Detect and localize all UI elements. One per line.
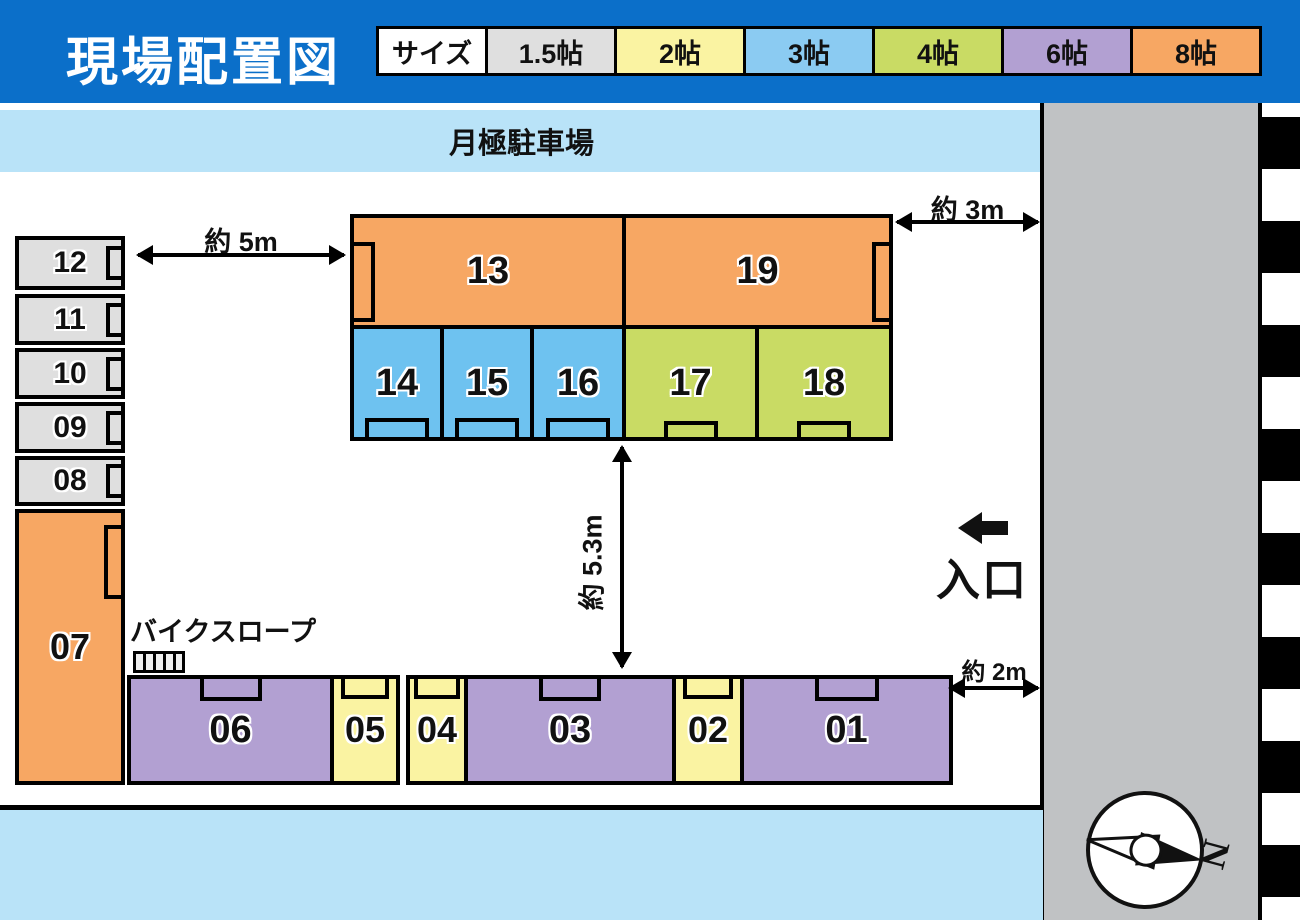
legend-item-3jo: 3帖: [743, 26, 875, 76]
legend-item-8jo: 8帖: [1130, 26, 1262, 76]
dimension-5-3m-arrow: [620, 447, 624, 667]
legend-item-4jo: 4帖: [872, 26, 1004, 76]
door-mark: [106, 246, 121, 280]
bottom-band: [0, 810, 1043, 920]
dimension-3m-arrow: [897, 220, 1038, 224]
unit-02-label: 02: [688, 709, 728, 751]
door-mark: [365, 418, 429, 437]
site-layout-map: 現場配置図 サイズ 1.5帖 2帖 3帖 4帖 6帖 8帖 月極駐車場 12 1…: [0, 0, 1300, 920]
unit-09-label: 09: [53, 411, 86, 445]
door-mark: [106, 411, 121, 445]
legend-header: サイズ: [376, 26, 488, 76]
size-legend: サイズ 1.5帖 2帖 3帖 4帖 6帖 8帖: [376, 26, 1262, 76]
unit-18: 18: [755, 325, 893, 441]
unit-07-label: 07: [50, 626, 90, 668]
unit-12-label: 12: [53, 246, 86, 280]
unit-06-label: 06: [209, 709, 251, 752]
entrance-label: 入口: [936, 544, 1028, 608]
door-mark: [106, 303, 121, 337]
unit-13: 13: [350, 214, 626, 329]
bike-ramp-hatch: [133, 651, 185, 673]
unit-04: 04: [406, 675, 468, 785]
unit-14-label: 14: [376, 362, 418, 405]
unit-15: 15: [440, 325, 534, 441]
dimension-5-3m-label: 約 5.3m: [571, 483, 610, 643]
unit-05-label: 05: [345, 709, 385, 751]
unit-09: 09: [15, 402, 125, 453]
door-mark: [200, 679, 262, 701]
dimension-5m-arrow: [138, 253, 344, 257]
door-mark: [354, 242, 375, 322]
unit-08: 08: [15, 456, 125, 506]
unit-10: 10: [15, 348, 125, 399]
door-mark: [539, 679, 601, 701]
unit-10-label: 10: [53, 357, 86, 391]
door-mark: [872, 242, 889, 322]
door-mark: [414, 679, 460, 699]
door-mark: [106, 464, 121, 498]
door-mark: [683, 679, 733, 699]
unit-17-label: 17: [669, 362, 711, 405]
door-mark: [106, 357, 121, 391]
legend-item-6jo: 6帖: [1001, 26, 1133, 76]
door-mark: [341, 679, 389, 699]
unit-04-label: 04: [417, 709, 457, 751]
legend-item-2jo: 2帖: [614, 26, 746, 76]
unit-03: 03: [464, 675, 676, 785]
unit-02: 02: [672, 675, 744, 785]
unit-11-label: 11: [54, 303, 86, 337]
unit-01-label: 01: [825, 709, 867, 752]
unit-19: 19: [622, 214, 893, 329]
unit-18-label: 18: [803, 362, 845, 405]
parking-band: 月極駐車場: [0, 110, 1043, 172]
unit-14: 14: [350, 325, 444, 441]
unit-07: 07: [15, 509, 125, 785]
door-mark: [546, 418, 610, 437]
bike-ramp-label: バイクスロープ: [130, 610, 316, 649]
door-mark: [104, 525, 121, 599]
header-bar: 現場配置図 サイズ 1.5帖 2帖 3帖 4帖 6帖 8帖: [0, 0, 1300, 103]
page-title: 現場配置図: [66, 20, 341, 95]
unit-08-label: 08: [53, 464, 86, 498]
unit-17: 17: [622, 325, 759, 441]
unit-15-label: 15: [466, 362, 508, 405]
unit-16: 16: [530, 325, 626, 441]
unit-19-label: 19: [736, 250, 778, 293]
unit-12: 12: [15, 236, 125, 290]
door-mark: [815, 679, 879, 701]
unit-03-label: 03: [549, 709, 591, 752]
unit-13-label: 13: [467, 250, 509, 293]
door-mark: [455, 418, 519, 437]
unit-11: 11: [15, 294, 125, 345]
dimension-2m-arrow: [950, 686, 1038, 690]
unit-05: 05: [330, 675, 400, 785]
unit-01: 01: [740, 675, 953, 785]
unit-16-label: 16: [557, 362, 599, 405]
road-edge-checker: [1262, 103, 1300, 920]
door-mark: [797, 421, 851, 437]
unit-06: 06: [127, 675, 334, 785]
legend-item-1-5jo: 1.5帖: [485, 26, 617, 76]
door-mark: [664, 421, 718, 437]
parking-label: 月極駐車場: [449, 120, 594, 162]
